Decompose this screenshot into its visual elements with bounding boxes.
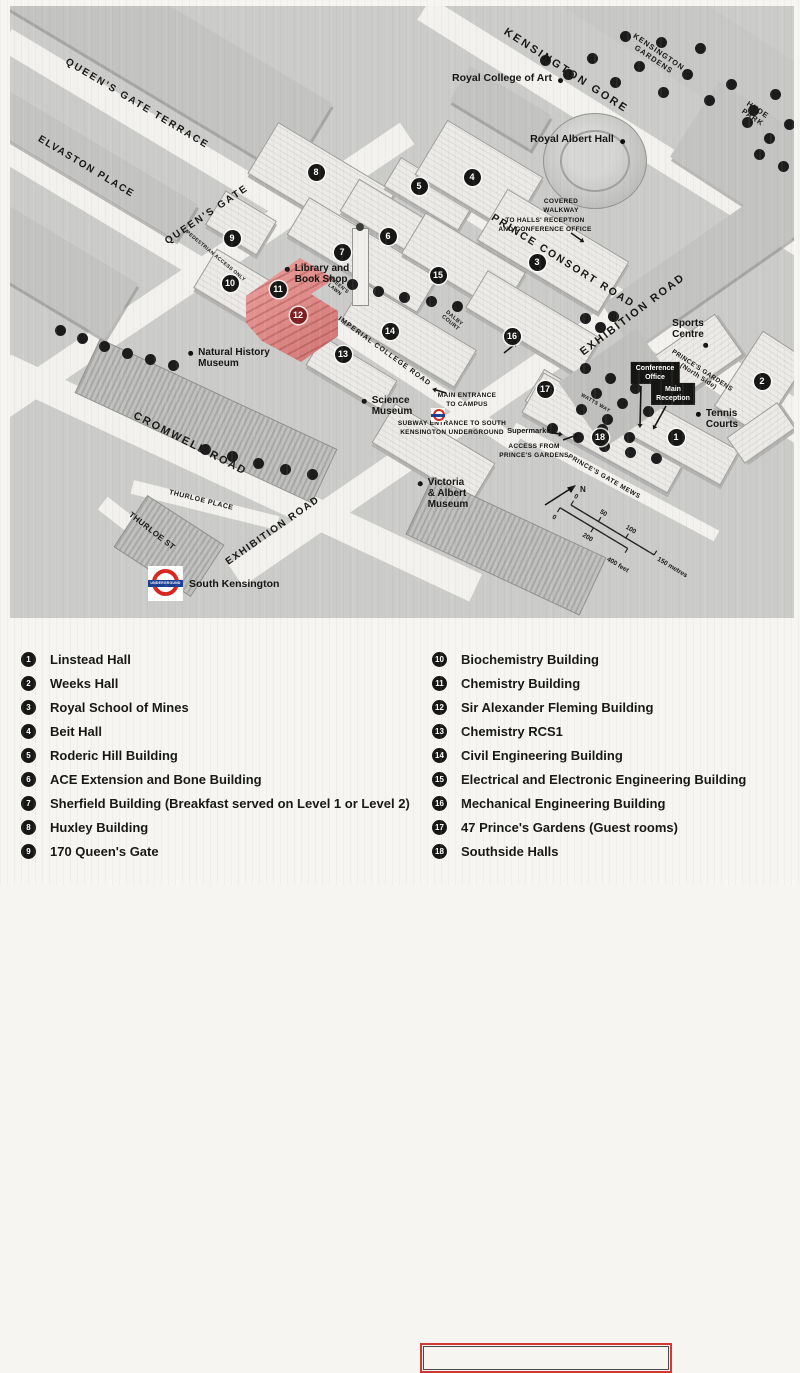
legend-label-mechanical-engineering-building: Mechanical Engineering Building: [461, 796, 665, 811]
scale-feet-tick-0: [557, 508, 560, 512]
north-label: N: [580, 485, 586, 494]
legend-item-3: 3Royal School of Mines: [21, 696, 410, 720]
map-marker-6: 6: [380, 228, 397, 245]
pointer-arrow-6: [436, 390, 446, 393]
scale-metres-tick-3: [654, 551, 657, 555]
legend-label-47-prince-s-gardens-guest-rooms: 47 Prince's Gardens (Guest rooms): [461, 820, 678, 835]
map-marker-4: 4: [464, 169, 481, 186]
legend-item-6: 6ACE Extension and Bone Building: [21, 767, 410, 791]
map-marker-15: 15: [430, 267, 447, 284]
pointer-arrowhead-0: [637, 424, 642, 428]
legend-highlight-box: [420, 1343, 672, 1373]
legend-item-12: 12Sir Alexander Fleming Building: [432, 696, 746, 720]
scale-metres-tick-1: [598, 517, 601, 521]
legend-item-15: 15Electrical and Electronic Engineering …: [432, 767, 746, 791]
map-annotations-svg: N050100150 metres0200400 feet: [10, 6, 794, 618]
legend-label-weeks-hall: Weeks Hall: [50, 676, 118, 691]
legend-badge-18: 18: [432, 844, 447, 859]
legend-item-13: 13Chemistry RCS1: [432, 720, 746, 744]
legend-badge-9: 9: [21, 844, 36, 859]
legend-label-linstead-hall: Linstead Hall: [50, 652, 131, 667]
roundel-bar: UNDERGROUND: [148, 580, 183, 587]
scale-feet-label-1: 200: [581, 532, 594, 544]
legend-badge-8: 8: [21, 820, 36, 835]
legend-item-4: 4Beit Hall: [21, 720, 410, 744]
legend-badge-16: 16: [432, 796, 447, 811]
scale-bar: 050100150 metres0200400 feet: [547, 489, 695, 602]
legend-item-11: 11Chemistry Building: [432, 672, 746, 696]
scale-metres-line: [571, 505, 654, 555]
map-marker-18: 18: [592, 429, 609, 446]
legend-column-right: 10Biochemistry Building11Chemistry Build…: [432, 648, 746, 863]
legend-badge-5: 5: [21, 748, 36, 763]
legend-label-huxley-building: Huxley Building: [50, 820, 148, 835]
legend-badge-17: 17: [432, 820, 447, 835]
pointer-arrow-4: [563, 436, 574, 440]
legend-item-8: 8Huxley Building: [21, 815, 410, 839]
map-marker-17: 17: [537, 381, 554, 398]
legend-label-sherfield-building-breakfast-served-on-level-1-or-level-2: Sherfield Building (Breakfast served on …: [50, 796, 410, 811]
legend-badge-14: 14: [432, 748, 447, 763]
subway-roundel-icon: [431, 408, 445, 422]
campus-map: N050100150 metres0200400 feet QUEEN'S GA…: [10, 6, 794, 618]
map-marker-3: 3: [529, 254, 546, 271]
legend: 1Linstead Hall2Weeks Hall3Royal School o…: [0, 648, 800, 885]
subway-roundel-bar: [431, 414, 445, 417]
legend-badge-15: 15: [432, 772, 447, 787]
scale-metres-label-2: 100: [624, 524, 637, 536]
legend-badge-1: 1: [21, 652, 36, 667]
legend-label-southside-halls: Southside Halls: [461, 844, 559, 859]
legend-item-14: 14Civil Engineering Building: [432, 744, 746, 768]
legend-label-ace-extension-and-bone-building: ACE Extension and Bone Building: [50, 772, 262, 787]
pointer-arrow-2: [504, 345, 514, 353]
legend-item-10: 10Biochemistry Building: [432, 648, 746, 672]
legend-badge-7: 7: [21, 796, 36, 811]
map-marker-13: 13: [335, 346, 352, 363]
pointer-arrow-3: [549, 432, 559, 434]
underground-roundel: UNDERGROUND: [148, 566, 183, 601]
scale-feet-tick-1: [591, 528, 594, 532]
legend-item-9: 9170 Queen's Gate: [21, 839, 410, 863]
legend-item-2: 2Weeks Hall: [21, 672, 410, 696]
legend-label-electrical-and-electronic-engineering-building: Electrical and Electronic Engineering Bu…: [461, 772, 746, 787]
map-marker-11: 11: [270, 281, 287, 298]
legend-label-royal-school-of-mines: Royal School of Mines: [50, 700, 189, 715]
map-marker-7: 7: [334, 244, 351, 261]
map-marker-16: 16: [504, 328, 521, 345]
north-arrow-line: [545, 489, 570, 505]
scale-feet-label-0: 0: [551, 514, 558, 522]
pointer-arrowhead-3: [558, 431, 562, 436]
scale-metres-label-1: 50: [598, 508, 608, 518]
legend-item-16: 16Mechanical Engineering Building: [432, 791, 746, 815]
map-marker-12: 12: [290, 307, 307, 324]
map-marker-8: 8: [308, 164, 325, 181]
legend-badge-13: 13: [432, 724, 447, 739]
legend-label-chemistry-rcs1: Chemistry RCS1: [461, 724, 563, 739]
scale-metres-tick-2: [626, 534, 629, 538]
legend-label-biochemistry-building: Biochemistry Building: [461, 652, 599, 667]
map-marker-2: 2: [754, 373, 771, 390]
legend-badge-10: 10: [432, 652, 447, 667]
legend-label-170-queen-s-gate: 170 Queen's Gate: [50, 844, 159, 859]
scale-metres-tick-0: [571, 501, 574, 505]
pointer-arrow-0: [640, 386, 641, 424]
legend-label-civil-engineering-building: Civil Engineering Building: [461, 748, 623, 763]
legend-badge-4: 4: [21, 724, 36, 739]
legend-label-sir-alexander-fleming-building: Sir Alexander Fleming Building: [461, 700, 653, 715]
legend-label-roderic-hill-building: Roderic Hill Building: [50, 748, 178, 763]
scale-feet-end-label: 400 feet: [606, 556, 631, 575]
map-marker-10: 10: [222, 275, 239, 292]
map-marker-1: 1: [668, 429, 685, 446]
legend-item-7: 7Sherfield Building (Breakfast served on…: [21, 791, 410, 815]
legend-item-17: 1747 Prince's Gardens (Guest rooms): [432, 815, 746, 839]
pointer-arrow-5: [571, 233, 581, 240]
legend-label-beit-hall: Beit Hall: [50, 724, 102, 739]
legend-badge-2: 2: [21, 676, 36, 691]
south-kensington-station-label: South Kensington: [189, 578, 279, 590]
map-marker-5: 5: [411, 178, 428, 195]
legend-badge-3: 3: [21, 700, 36, 715]
scale-metres-end-label: 150 metres: [656, 556, 689, 580]
legend-badge-6: 6: [21, 772, 36, 787]
legend-item-5: 5Roderic Hill Building: [21, 744, 410, 768]
legend-item-18: 18Southside Halls: [432, 839, 746, 863]
legend-item-1: 1Linstead Hall: [21, 648, 410, 672]
map-marker-9: 9: [224, 230, 241, 247]
legend-badge-11: 11: [432, 676, 447, 691]
scale-metres-label-0: 0: [573, 493, 580, 501]
pointer-arrow-1: [655, 406, 666, 426]
map-marker-14: 14: [382, 323, 399, 340]
north-arrowhead: [567, 485, 576, 493]
legend-column-left: 1Linstead Hall2Weeks Hall3Royal School o…: [21, 648, 410, 863]
legend-badge-12: 12: [432, 700, 447, 715]
scale-feet-tick-2: [625, 548, 628, 552]
legend-label-chemistry-building: Chemistry Building: [461, 676, 580, 691]
